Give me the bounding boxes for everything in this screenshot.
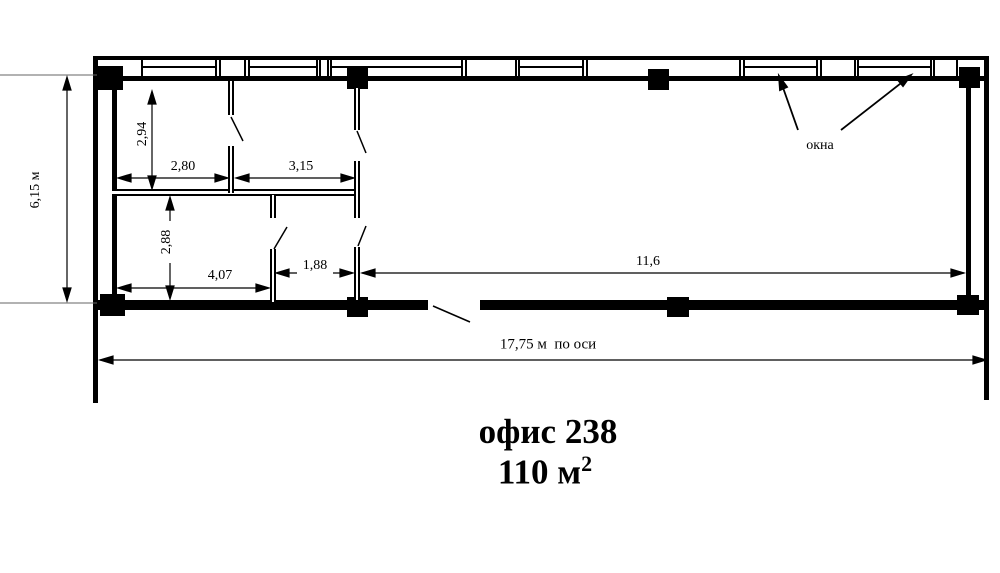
dim-upper-room-depth-label: 2,94 xyxy=(136,122,150,147)
dim-total-length-axis-label: 17,75 м по оси xyxy=(500,338,596,353)
dim-room3-width-label: 4,07 xyxy=(208,269,233,283)
door-swing xyxy=(274,227,287,249)
dim-total-height-label: 6,15 м xyxy=(29,172,43,209)
extension-lines xyxy=(0,75,97,303)
dim-open-area-width xyxy=(362,269,964,277)
windows-leader-arrows xyxy=(779,75,911,130)
door-swing xyxy=(231,117,243,141)
door-swings xyxy=(231,117,470,322)
dim-total-length-axis xyxy=(100,356,986,364)
dim-room2-width xyxy=(236,174,354,182)
plan-title: офис 238 xyxy=(479,414,618,451)
plan-area: 110 м2 xyxy=(498,452,592,491)
floor-plan: 6,15 м 2,94 2,80 3,15 2,88 4,07 1,88 11,… xyxy=(0,0,1000,573)
dim-room1-width-label: 2,80 xyxy=(171,160,196,174)
plan-area-exponent: 2 xyxy=(581,451,592,476)
dim-lower-room-depth-label: 2,88 xyxy=(160,230,174,255)
dim-room1-width xyxy=(118,174,228,182)
door-swing xyxy=(357,131,366,153)
dim-total-height xyxy=(63,77,71,301)
door-swing xyxy=(358,226,366,246)
dim-room2-width-label: 3,15 xyxy=(289,160,314,174)
windows-label: окна xyxy=(806,139,834,153)
dim-open-area-width-label: 11,6 xyxy=(636,255,660,269)
entrance-door-swing xyxy=(433,306,470,322)
dim-room3-width xyxy=(118,284,269,292)
plan-area-value: 110 м xyxy=(498,453,581,492)
dim-passage-width-label: 1,88 xyxy=(303,259,328,273)
